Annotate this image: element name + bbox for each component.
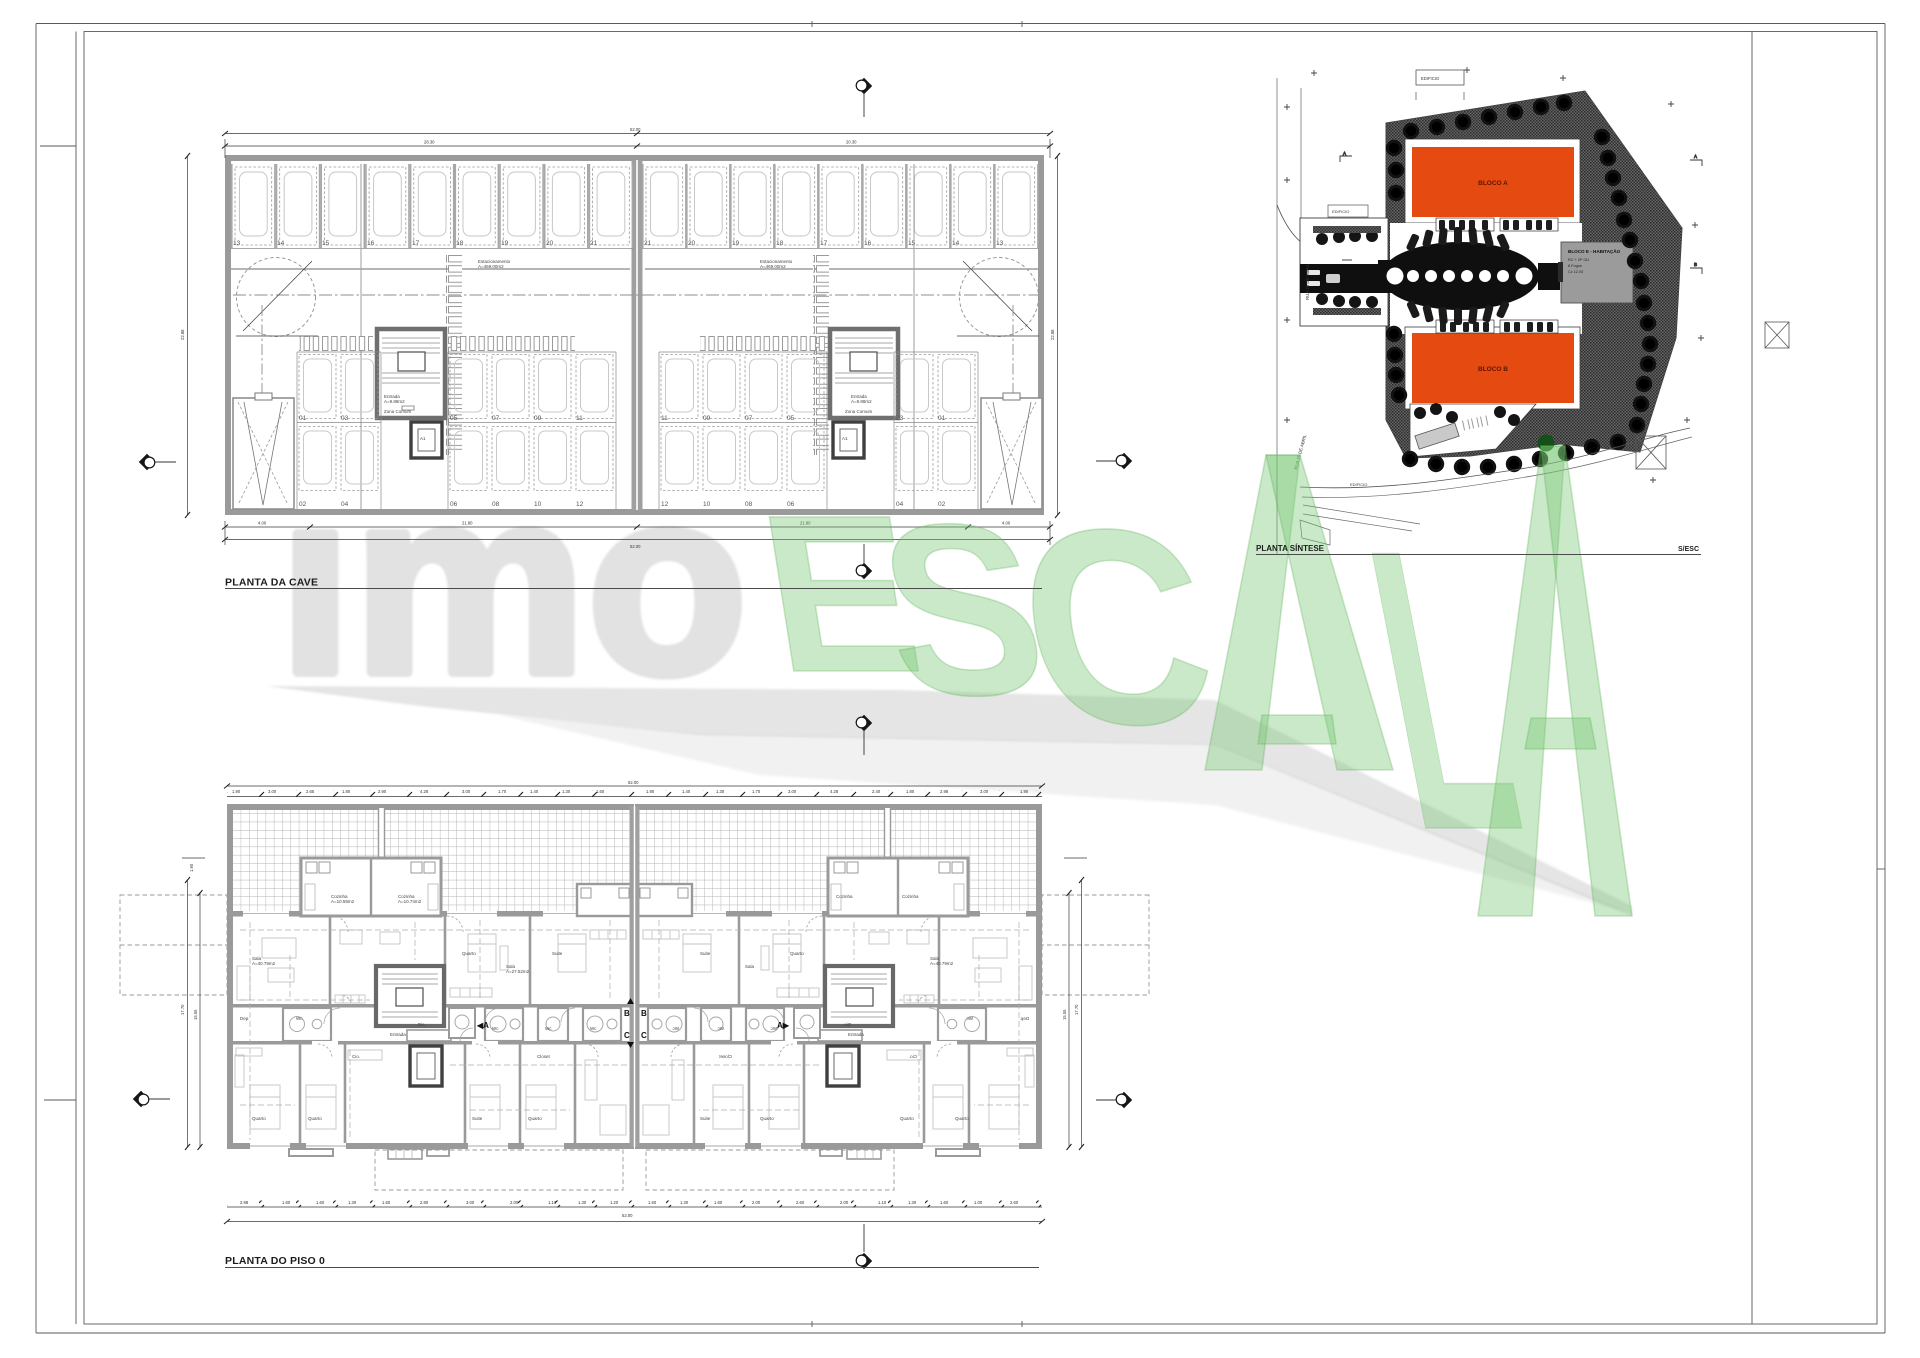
svg-text:05: 05 [450, 415, 458, 422]
svg-text:17: 17 [820, 240, 828, 247]
svg-text:21: 21 [590, 240, 598, 247]
svg-text:1.40: 1.40 [682, 789, 691, 794]
svg-text:15.55: 15.55 [193, 1009, 198, 1020]
svg-text:1.20: 1.20 [610, 1200, 619, 1205]
svg-text:A: A [1694, 154, 1697, 159]
svg-text:1.60: 1.60 [382, 1200, 391, 1205]
svg-text:2.90: 2.90 [378, 789, 387, 794]
svg-text:16: 16 [367, 240, 375, 247]
svg-text:1.60: 1.60 [596, 789, 605, 794]
svg-text:1.80: 1.80 [906, 789, 915, 794]
svg-text:1.90: 1.90 [232, 789, 241, 794]
svg-text:1.40: 1.40 [530, 789, 539, 794]
svg-text:1.90: 1.90 [646, 789, 655, 794]
svg-text:1.90: 1.90 [189, 863, 194, 872]
svg-text:1.60: 1.60 [714, 1200, 723, 1205]
svg-text:A=27.52m2: A=27.52m2 [506, 969, 530, 974]
svg-text:15.55: 15.55 [1062, 1009, 1067, 1020]
svg-text:Suite: Suite [700, 1116, 711, 1121]
svg-text:2.00: 2.00 [510, 1200, 519, 1205]
svg-text:Quarto: Quarto [462, 951, 476, 956]
svg-text:11: 11 [661, 415, 668, 422]
svg-text:Suite: Suite [552, 951, 563, 956]
svg-text:1.10: 1.10 [878, 1200, 887, 1205]
svg-text:06: 06 [450, 501, 458, 508]
svg-text:Cozinha: Cozinha [902, 894, 919, 899]
svg-text:17.70: 17.70 [180, 1004, 185, 1015]
svg-text:20: 20 [688, 240, 696, 247]
svg-text:BLOCO E - HABITAÇÃO: BLOCO E - HABITAÇÃO [1568, 248, 1621, 254]
svg-text:52.00: 52.00 [630, 127, 641, 132]
svg-text:3.00: 3.00 [980, 789, 989, 794]
svg-text:4.00: 4.00 [258, 521, 267, 526]
svg-text:1.30: 1.30 [348, 1200, 357, 1205]
svg-text:2.40: 2.40 [872, 789, 881, 794]
svg-text:A: A [1343, 151, 1346, 156]
svg-text:1.30: 1.30 [908, 1200, 917, 1205]
svg-text:3.00: 3.00 [788, 789, 797, 794]
svg-text:EDIFICIO: EDIFICIO [1421, 76, 1440, 81]
svg-text:A=40.79m2: A=40.79m2 [252, 961, 276, 966]
svg-text:B: B [641, 1009, 647, 1018]
svg-text:Quarto: Quarto [760, 1116, 774, 1121]
svg-text:A1: A1 [420, 436, 426, 441]
svg-text:12: 12 [661, 501, 669, 508]
svg-text:8 Fogos: 8 Fogos [1568, 264, 1582, 268]
svg-text:21: 21 [644, 240, 652, 247]
svg-text:2.60: 2.60 [796, 1200, 805, 1205]
svg-text:PLANTA DA CAVE: PLANTA DA CAVE [225, 577, 318, 589]
svg-text:01: 01 [299, 415, 307, 422]
svg-text:1.30: 1.30 [562, 789, 571, 794]
svg-text:Cc 12.00: Cc 12.00 [1568, 270, 1583, 274]
svg-text:1.00: 1.00 [974, 1200, 983, 1205]
svg-text:13: 13 [996, 240, 1004, 247]
svg-text:Suite: Suite [700, 951, 711, 956]
svg-text:3.00: 3.00 [268, 789, 277, 794]
svg-text:09: 09 [534, 415, 542, 422]
svg-text:◀A: ◀A [476, 1021, 489, 1030]
svg-text:B: B [624, 1009, 630, 1018]
svg-text:B: B [1694, 262, 1697, 267]
svg-text:19: 19 [501, 240, 509, 247]
svg-text:A=9.88m2: A=9.88m2 [384, 399, 405, 404]
svg-text:14: 14 [952, 240, 960, 247]
svg-text:A▶: A▶ [777, 1021, 790, 1030]
svg-text:S/ESC: S/ESC [1678, 546, 1699, 553]
svg-text:Cozinha: Cozinha [836, 894, 853, 899]
svg-text:Quarto: Quarto [900, 1116, 914, 1121]
svg-text:07: 07 [745, 415, 753, 422]
svg-text:Entrada: Entrada [848, 1032, 864, 1037]
svg-text:1.90: 1.90 [1020, 789, 1029, 794]
svg-text:21.80: 21.80 [462, 521, 473, 526]
svg-text:1.60: 1.60 [316, 1200, 325, 1205]
svg-text:18: 18 [776, 240, 784, 247]
svg-text:10: 10 [534, 501, 542, 508]
svg-text:Zona Comum: Zona Comum [384, 409, 412, 414]
svg-text:A=469.00m2: A=469.00m2 [478, 264, 504, 269]
svg-text:3.00: 3.00 [462, 789, 471, 794]
svg-text:17: 17 [412, 240, 420, 247]
svg-text:A1: A1 [842, 436, 848, 441]
svg-text:52.00: 52.00 [630, 544, 641, 549]
svg-text:Quarto: Quarto [528, 1116, 542, 1121]
svg-text:A=40.79m2: A=40.79m2 [930, 961, 954, 966]
svg-text:05: 05 [787, 415, 795, 422]
svg-text:1.60: 1.60 [282, 1200, 291, 1205]
svg-text:52.00: 52.00 [622, 1213, 633, 1218]
svg-text:A=10.74m2: A=10.74m2 [398, 899, 422, 904]
svg-text:Quarto: Quarto [955, 1116, 969, 1121]
svg-text:03: 03 [896, 415, 904, 422]
svg-text:15: 15 [322, 240, 330, 247]
svg-text:Quarto: Quarto [790, 951, 804, 956]
svg-text:BLOCO B: BLOCO B [1478, 366, 1508, 373]
svg-text:20.30: 20.30 [846, 140, 857, 145]
svg-text:4.28: 4.28 [830, 789, 839, 794]
svg-text:Quarto: Quarto [308, 1116, 322, 1121]
svg-text:C: C [624, 1031, 630, 1040]
svg-text:2.65: 2.65 [306, 789, 315, 794]
svg-text:2.60: 2.60 [1010, 1200, 1019, 1205]
svg-text:01: 01 [938, 415, 946, 422]
svg-text:17.70: 17.70 [1074, 1004, 1079, 1015]
svg-text:PLANTA DO PISO 0: PLANTA DO PISO 0 [225, 1255, 325, 1267]
svg-text:18: 18 [456, 240, 464, 247]
svg-text:1.70: 1.70 [752, 789, 761, 794]
svg-text:52.00: 52.00 [628, 780, 639, 785]
svg-text:Suite: Suite [472, 1116, 483, 1121]
svg-text:20: 20 [546, 240, 554, 247]
svg-text:RUA 25 DE ABRIL: RUA 25 DE ABRIL [1305, 263, 1310, 300]
svg-text:2.00: 2.00 [840, 1200, 849, 1205]
svg-text:03: 03 [341, 415, 349, 422]
svg-text:1.60: 1.60 [940, 1200, 949, 1205]
svg-text:12: 12 [576, 501, 584, 508]
svg-text:2.98: 2.98 [940, 789, 949, 794]
svg-text:1.10: 1.10 [548, 1200, 557, 1205]
svg-text:10: 10 [703, 501, 711, 508]
svg-text:22.88: 22.88 [180, 329, 185, 340]
svg-text:Zona Comum: Zona Comum [845, 409, 873, 414]
svg-text:A=10.59m2: A=10.59m2 [331, 899, 355, 904]
svg-text:14: 14 [277, 240, 285, 247]
svg-text:C: C [641, 1031, 647, 1040]
svg-text:BLOCO A: BLOCO A [1478, 180, 1508, 187]
svg-text:08: 08 [492, 501, 500, 508]
svg-text:2.80: 2.80 [420, 1200, 429, 1205]
svg-text:19: 19 [732, 240, 740, 247]
svg-text:1.30: 1.30 [680, 1200, 689, 1205]
svg-text:A=469.00m2: A=469.00m2 [760, 264, 786, 269]
svg-text:Quarto: Quarto [252, 1116, 266, 1121]
svg-text:11: 11 [576, 415, 583, 422]
svg-text:PLANTA SÍNTESE: PLANTA SÍNTESE [1256, 544, 1325, 553]
svg-text:RC + 2P OU: RC + 2P OU [1568, 258, 1589, 262]
svg-text:16: 16 [864, 240, 872, 247]
svg-text:28.30: 28.30 [424, 140, 435, 145]
svg-text:1.30: 1.30 [716, 789, 725, 794]
svg-text:07: 07 [492, 415, 500, 422]
svg-text:13: 13 [233, 240, 241, 247]
svg-text:2.00: 2.00 [752, 1200, 761, 1205]
svg-text:EDIFICIO: EDIFICIO [1332, 209, 1349, 214]
svg-text:1.60: 1.60 [648, 1200, 657, 1205]
svg-text:1.70: 1.70 [498, 789, 507, 794]
svg-text:Sala: Sala [745, 964, 755, 969]
svg-text:22.88: 22.88 [1050, 329, 1055, 340]
svg-text:02: 02 [299, 501, 307, 508]
svg-text:3.00: 3.00 [466, 1200, 475, 1205]
svg-text:A=9.88m2: A=9.88m2 [851, 399, 872, 404]
svg-text:4.28: 4.28 [420, 789, 429, 794]
svg-text:Entrada: Entrada [390, 1032, 406, 1037]
svg-text:2.98: 2.98 [240, 1200, 249, 1205]
svg-text:1.80: 1.80 [342, 789, 351, 794]
svg-text:09: 09 [703, 415, 711, 422]
svg-text:04: 04 [341, 501, 349, 508]
svg-text:1.30: 1.30 [578, 1200, 587, 1205]
